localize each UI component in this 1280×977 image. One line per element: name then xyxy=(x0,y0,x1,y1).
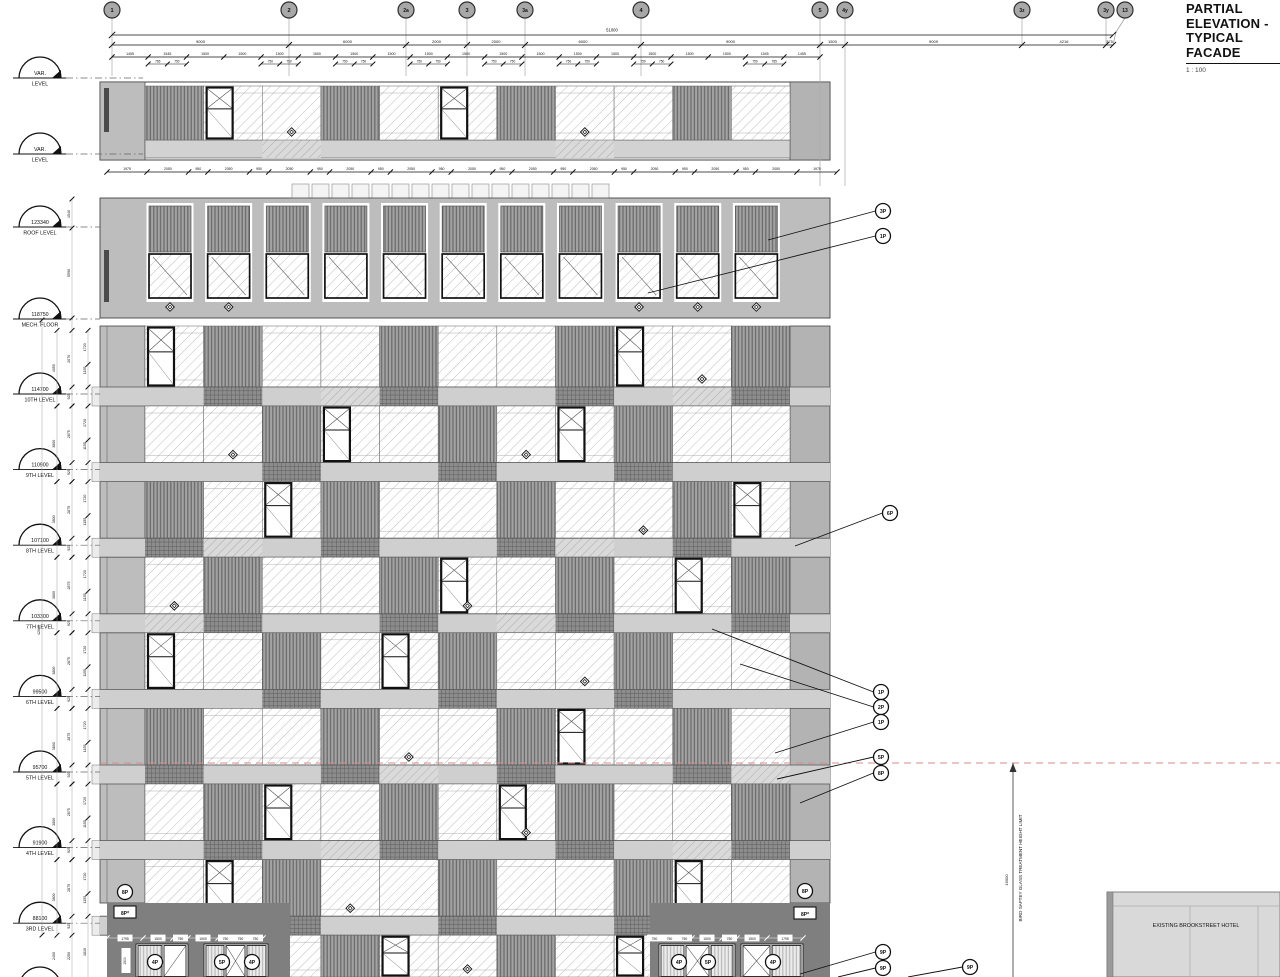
svg-text:1500: 1500 xyxy=(648,52,656,56)
spandrel-panel xyxy=(321,935,380,977)
svg-text:1500: 1500 xyxy=(499,52,507,56)
facade-floor-strip xyxy=(145,708,790,765)
svg-text:91900: 91900 xyxy=(33,841,48,847)
svg-text:2050: 2050 xyxy=(286,167,294,171)
facade-floor-strip xyxy=(145,482,790,539)
svg-text:1500: 1500 xyxy=(387,52,395,56)
svg-text:2050: 2050 xyxy=(529,167,537,171)
window-module xyxy=(497,860,556,917)
window-module xyxy=(438,708,497,765)
window-module xyxy=(145,633,204,690)
svg-text:1975: 1975 xyxy=(123,167,131,171)
svg-text:2875: 2875 xyxy=(67,733,71,741)
roof-slot xyxy=(147,203,194,311)
svg-text:2: 2 xyxy=(287,8,290,14)
svg-text:750: 750 xyxy=(752,60,758,64)
window-module xyxy=(555,482,614,539)
svg-text:765: 765 xyxy=(772,60,778,64)
svg-text:8P: 8P xyxy=(802,889,809,895)
window-module xyxy=(438,482,497,539)
spandrel-panel xyxy=(731,784,790,841)
callout-box: 8P* xyxy=(114,906,136,918)
window-module xyxy=(262,557,321,614)
svg-text:1455: 1455 xyxy=(126,52,134,56)
svg-text:1975: 1975 xyxy=(813,167,821,171)
svg-text:950: 950 xyxy=(439,167,445,171)
svg-text:1155: 1155 xyxy=(83,367,87,375)
svg-text:4P: 4P xyxy=(770,960,777,966)
spandrel-panel xyxy=(262,406,321,463)
svg-text:118750: 118750 xyxy=(31,312,48,318)
svg-text:4y: 4y xyxy=(842,8,848,14)
spandrel-panel xyxy=(321,86,380,140)
facade-floor-strip xyxy=(145,633,790,690)
floor-band xyxy=(100,689,830,708)
svg-text:1720: 1720 xyxy=(83,570,87,578)
window-module xyxy=(380,633,439,690)
svg-text:750: 750 xyxy=(510,60,516,64)
svg-text:2050: 2050 xyxy=(407,167,415,171)
floor-band xyxy=(100,463,830,482)
grid-bubble: 3 xyxy=(459,2,475,76)
svg-text:5P: 5P xyxy=(219,960,226,966)
floor-band xyxy=(100,765,830,784)
spandrel-panel xyxy=(380,326,439,387)
svg-text:LEVEL: LEVEL xyxy=(32,158,49,164)
svg-text:1500: 1500 xyxy=(154,937,162,941)
svg-text:9009: 9009 xyxy=(929,39,939,44)
facade-floor-strip xyxy=(145,557,790,614)
window-module xyxy=(262,784,321,841)
svg-text:103300: 103300 xyxy=(31,614,49,620)
svg-text:765: 765 xyxy=(155,60,161,64)
callout-badge: 5P xyxy=(701,955,716,970)
roof-slot xyxy=(264,203,311,302)
svg-text:750: 750 xyxy=(667,937,673,941)
elevation-drawing: 1795150075015007507507507507507501500750… xyxy=(0,0,1280,977)
window-module xyxy=(438,935,497,977)
facade-floor-strip xyxy=(145,784,790,841)
svg-text:6P: 6P xyxy=(887,511,894,517)
callout-badge: 5P xyxy=(215,955,230,970)
roof-slot xyxy=(733,203,780,311)
framed-window xyxy=(500,786,526,840)
window-module xyxy=(497,784,556,841)
window-module xyxy=(262,708,321,765)
svg-text:3a: 3a xyxy=(522,8,528,14)
window-module xyxy=(262,86,321,140)
svg-text:950: 950 xyxy=(743,167,749,171)
svg-text:3y: 3y xyxy=(1103,8,1109,14)
svg-text:2050: 2050 xyxy=(468,167,476,171)
svg-text:16000: 16000 xyxy=(1004,874,1009,886)
spandrel-panel xyxy=(555,784,614,841)
svg-text:2050: 2050 xyxy=(164,167,172,171)
svg-text:750: 750 xyxy=(361,60,367,64)
callout-box: 8P* xyxy=(794,907,816,919)
framed-window xyxy=(265,483,291,537)
window-module xyxy=(145,406,204,463)
svg-text:750: 750 xyxy=(417,60,423,64)
svg-text:9P: 9P xyxy=(880,950,887,956)
svg-text:110900: 110900 xyxy=(31,463,48,469)
svg-text:750: 750 xyxy=(435,60,441,64)
svg-text:1720: 1720 xyxy=(83,646,87,654)
roof-slot xyxy=(381,203,428,302)
svg-text:950: 950 xyxy=(682,167,688,171)
window-module xyxy=(497,406,556,463)
svg-text:3800: 3800 xyxy=(52,515,56,523)
svg-text:750: 750 xyxy=(727,937,733,941)
svg-text:2070: 2070 xyxy=(67,355,71,363)
svg-text:2000: 2000 xyxy=(432,39,442,44)
window-module xyxy=(497,557,556,614)
window-module xyxy=(673,784,732,841)
spandrel-panel xyxy=(262,633,321,690)
svg-text:750: 750 xyxy=(491,60,497,64)
svg-text:750: 750 xyxy=(178,937,184,941)
svg-text:VAR.: VAR. xyxy=(34,71,46,77)
svg-text:1500: 1500 xyxy=(313,52,321,56)
svg-text:3800: 3800 xyxy=(52,818,56,826)
svg-text:1500: 1500 xyxy=(238,52,246,56)
window-module xyxy=(145,326,204,387)
svg-text:750: 750 xyxy=(174,60,180,64)
svg-text:1720: 1720 xyxy=(83,797,87,805)
svg-text:1500: 1500 xyxy=(201,52,209,56)
svg-text:750: 750 xyxy=(223,937,229,941)
svg-text:4P: 4P xyxy=(152,960,159,966)
svg-text:925: 925 xyxy=(67,394,71,400)
roof-slot xyxy=(674,203,721,311)
svg-text:3800: 3800 xyxy=(52,742,56,750)
svg-text:750: 750 xyxy=(659,60,665,64)
svg-text:1500: 1500 xyxy=(611,52,619,56)
svg-text:750: 750 xyxy=(238,937,244,941)
window-module xyxy=(555,86,614,140)
svg-text:1500: 1500 xyxy=(703,937,711,941)
spandrel-panel xyxy=(321,482,380,539)
svg-text:4P: 4P xyxy=(249,960,256,966)
window-module xyxy=(438,86,497,140)
window-module xyxy=(731,406,790,463)
svg-text:5TH LEVEL: 5TH LEVEL xyxy=(26,776,54,782)
svg-text:1810: 1810 xyxy=(83,948,87,956)
svg-text:MECH. FLOOR: MECH. FLOOR xyxy=(22,323,59,329)
svg-text:95700: 95700 xyxy=(33,765,48,771)
facade-floor-strip xyxy=(262,935,672,977)
spandrel-panel xyxy=(497,935,556,977)
callout-badge: 4P xyxy=(766,955,781,970)
svg-text:1720: 1720 xyxy=(83,721,87,729)
framed-window xyxy=(734,483,760,537)
svg-text:750: 750 xyxy=(640,60,646,64)
svg-text:6TH LEVEL: 6TH LEVEL xyxy=(26,700,54,706)
spandrel-panel xyxy=(673,86,732,140)
svg-text:3800: 3800 xyxy=(52,667,56,675)
spandrel-panel xyxy=(204,784,263,841)
svg-text:2050: 2050 xyxy=(772,167,780,171)
svg-text:1P: 1P xyxy=(880,234,887,240)
svg-text:6000: 6000 xyxy=(579,39,589,44)
svg-text:375: 375 xyxy=(1106,39,1113,44)
spandrel-panel xyxy=(145,708,204,765)
svg-text:123340: 123340 xyxy=(31,220,49,226)
spandrel-panel xyxy=(614,406,673,463)
svg-text:950: 950 xyxy=(621,167,627,171)
svg-text:9TH LEVEL: 9TH LEVEL xyxy=(26,473,54,479)
spandrel-panel xyxy=(555,557,614,614)
callout-badge: 4P xyxy=(672,955,687,970)
framed-window xyxy=(383,634,409,688)
svg-text:107100: 107100 xyxy=(31,538,49,544)
window-module xyxy=(555,935,614,977)
spandrel-panel xyxy=(497,482,556,539)
svg-text:9000: 9000 xyxy=(196,39,206,44)
window-module xyxy=(497,326,556,387)
svg-text:1155: 1155 xyxy=(83,518,87,526)
window-module xyxy=(614,482,673,539)
spandrel-panel xyxy=(731,557,790,614)
framed-window xyxy=(617,937,643,976)
svg-text:950: 950 xyxy=(499,167,505,171)
svg-text:LEVEL: LEVEL xyxy=(32,82,49,88)
svg-text:750: 750 xyxy=(286,60,292,64)
framed-window xyxy=(148,328,174,386)
roof-slot xyxy=(205,203,252,311)
svg-text:1155: 1155 xyxy=(83,745,87,753)
svg-text:950: 950 xyxy=(195,167,201,171)
svg-text:2875: 2875 xyxy=(67,808,71,816)
svg-text:1155: 1155 xyxy=(83,593,87,601)
svg-text:1720: 1720 xyxy=(83,419,87,427)
callout-badge: 4P xyxy=(245,955,260,970)
spandrel-panel xyxy=(438,406,497,463)
svg-text:1795: 1795 xyxy=(781,937,789,941)
framed-window xyxy=(148,634,174,688)
window-module xyxy=(204,406,263,463)
svg-text:1545: 1545 xyxy=(163,52,171,56)
window-module xyxy=(673,326,732,387)
sheet-title-line1: PARTIAL ELEVATION - xyxy=(1186,2,1280,31)
svg-text:13: 13 xyxy=(1122,8,1128,14)
svg-text:3RD LEVEL: 3RD LEVEL xyxy=(26,927,55,933)
window-module xyxy=(614,784,673,841)
svg-text:42040: 42040 xyxy=(37,625,41,635)
window-module xyxy=(204,86,263,140)
framed-window xyxy=(676,559,702,613)
floor-band xyxy=(100,387,830,406)
svg-text:6000: 6000 xyxy=(343,39,353,44)
svg-text:EXISTING BROOKSTREET HOTEL: EXISTING BROOKSTREET HOTEL xyxy=(1153,923,1240,929)
window-module xyxy=(321,633,380,690)
spandrel-panel xyxy=(380,557,439,614)
svg-text:8P*: 8P* xyxy=(121,911,129,917)
svg-text:4TH LEVEL: 4TH LEVEL xyxy=(26,851,54,857)
window-module xyxy=(555,708,614,765)
svg-text:10TH LEVEL: 10TH LEVEL xyxy=(25,398,56,404)
sheet-scale: 1 : 100 xyxy=(1186,67,1280,74)
svg-text:1500: 1500 xyxy=(276,52,284,56)
svg-text:1P: 1P xyxy=(878,690,885,696)
grid-bubble: 2 xyxy=(281,2,297,76)
svg-text:1155: 1155 xyxy=(83,896,87,904)
svg-text:3800: 3800 xyxy=(52,591,56,599)
svg-text:5: 5 xyxy=(818,8,821,14)
spandrel-panel xyxy=(731,326,790,387)
window-module xyxy=(731,86,790,140)
grid-bubble: 3z xyxy=(1014,2,1030,45)
svg-text:9P: 9P xyxy=(967,965,974,971)
framed-window xyxy=(441,559,467,613)
window-module xyxy=(497,633,556,690)
facade-floor-strip xyxy=(145,406,790,463)
window-module xyxy=(731,708,790,765)
svg-text:1455: 1455 xyxy=(798,52,806,56)
roof-slot xyxy=(616,203,663,311)
window-module xyxy=(614,86,673,140)
window-module xyxy=(438,326,497,387)
spandrel-panel xyxy=(204,557,263,614)
callout-badge: 9P xyxy=(908,960,978,977)
svg-text:1155: 1155 xyxy=(83,442,87,450)
spandrel-panel xyxy=(673,482,732,539)
svg-text:2050: 2050 xyxy=(225,167,233,171)
window-module xyxy=(145,784,204,841)
svg-text:2P: 2P xyxy=(878,705,885,711)
svg-text:8P: 8P xyxy=(122,890,129,896)
svg-text:2000: 2000 xyxy=(492,39,502,44)
svg-text:ROOF LEVEL: ROOF LEVEL xyxy=(23,231,56,237)
svg-text:925: 925 xyxy=(67,469,71,475)
svg-text:3P: 3P xyxy=(880,209,887,215)
spandrel-panel xyxy=(497,708,556,765)
framed-window xyxy=(441,88,467,139)
svg-text:925: 925 xyxy=(67,847,71,853)
svg-text:1500: 1500 xyxy=(199,937,207,941)
svg-text:750: 750 xyxy=(253,937,259,941)
floor-band xyxy=(100,538,830,557)
window-module xyxy=(204,482,263,539)
svg-text:1500: 1500 xyxy=(828,39,838,44)
window-module xyxy=(321,557,380,614)
window-module xyxy=(555,406,614,463)
window-module xyxy=(614,708,673,765)
window-module xyxy=(204,708,263,765)
svg-text:2875: 2875 xyxy=(67,506,71,514)
grid-bubble: 4y xyxy=(837,2,853,186)
window-module xyxy=(438,557,497,614)
svg-text:1155: 1155 xyxy=(83,820,87,828)
svg-text:2050: 2050 xyxy=(651,167,659,171)
svg-text:4P: 4P xyxy=(676,960,683,966)
window-module xyxy=(673,406,732,463)
framed-window xyxy=(207,88,233,139)
svg-text:4216: 4216 xyxy=(1060,39,1070,44)
window-module xyxy=(321,784,380,841)
window-module xyxy=(380,406,439,463)
window-module xyxy=(321,406,380,463)
window-module xyxy=(731,482,790,539)
svg-text:1500: 1500 xyxy=(123,957,127,965)
level-marker: 118750MECH. FLOOR xyxy=(13,298,100,329)
window-module xyxy=(321,326,380,387)
svg-text:1500: 1500 xyxy=(723,52,731,56)
svg-text:2400: 2400 xyxy=(52,952,56,960)
svg-text:750: 750 xyxy=(584,60,590,64)
svg-text:750: 750 xyxy=(566,60,572,64)
svg-text:99500: 99500 xyxy=(33,689,48,695)
svg-text:1500: 1500 xyxy=(748,937,756,941)
spandrel-panel xyxy=(380,784,439,841)
roof-slot xyxy=(440,203,487,302)
svg-text:2050: 2050 xyxy=(711,167,719,171)
svg-text:2a: 2a xyxy=(403,8,409,14)
callout-badge: 8P xyxy=(798,884,813,899)
svg-text:88100: 88100 xyxy=(33,916,48,922)
window-module xyxy=(262,326,321,387)
svg-text:1720: 1720 xyxy=(83,495,87,503)
svg-text:114700: 114700 xyxy=(31,387,48,393)
svg-text:1795: 1795 xyxy=(121,937,129,941)
framed-window xyxy=(265,786,291,840)
window-module xyxy=(673,557,732,614)
grid-bubble: 1 xyxy=(104,2,120,76)
callout-badge: 9P xyxy=(838,961,891,977)
svg-text:925: 925 xyxy=(67,545,71,551)
svg-text:950: 950 xyxy=(378,167,384,171)
svg-text:BIRD SAFTEY GLASS TREATMENT HE: BIRD SAFTEY GLASS TREATMENT HEIGHT LIMIT xyxy=(1018,814,1023,921)
framed-window xyxy=(558,408,584,462)
svg-text:5P: 5P xyxy=(878,755,885,761)
svg-text:2050: 2050 xyxy=(590,167,598,171)
svg-text:2250: 2250 xyxy=(67,952,71,960)
svg-text:1720: 1720 xyxy=(83,873,87,881)
svg-text:1500: 1500 xyxy=(686,52,694,56)
window-module xyxy=(204,633,263,690)
spandrel-panel xyxy=(145,482,204,539)
svg-text:925: 925 xyxy=(67,772,71,778)
spandrel-panel xyxy=(497,86,556,140)
svg-text:2875: 2875 xyxy=(67,657,71,665)
svg-text:1540: 1540 xyxy=(67,210,71,218)
svg-text:9P: 9P xyxy=(880,966,887,972)
floor-band xyxy=(100,614,830,633)
svg-text:5P: 5P xyxy=(705,960,712,966)
svg-text:VAR.: VAR. xyxy=(34,147,46,153)
framed-window xyxy=(383,937,409,976)
spandrel-panel xyxy=(614,633,673,690)
window-module xyxy=(262,482,321,539)
svg-text:925: 925 xyxy=(67,696,71,702)
svg-text:925: 925 xyxy=(67,620,71,626)
svg-text:9000: 9000 xyxy=(726,39,736,44)
svg-text:8TH LEVEL: 8TH LEVEL xyxy=(26,549,54,555)
svg-text:750: 750 xyxy=(342,60,348,64)
svg-text:925: 925 xyxy=(67,923,71,929)
svg-text:5590: 5590 xyxy=(67,269,71,277)
svg-text:1500: 1500 xyxy=(425,52,433,56)
svg-text:950: 950 xyxy=(256,167,262,171)
window-module xyxy=(438,784,497,841)
floor-band xyxy=(100,841,830,860)
roof-mech-band xyxy=(100,198,830,318)
roof-slot xyxy=(498,203,545,302)
window-module xyxy=(380,708,439,765)
svg-text:950: 950 xyxy=(560,167,566,171)
parapet-railing xyxy=(285,184,615,198)
window-module xyxy=(555,633,614,690)
